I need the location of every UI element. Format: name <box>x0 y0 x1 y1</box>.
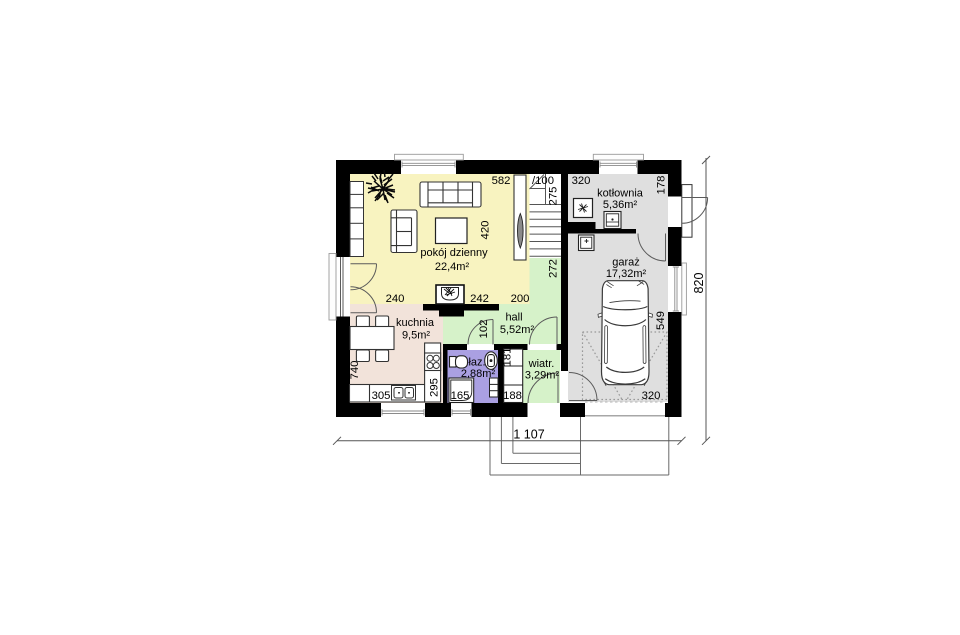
svg-text:1 107: 1 107 <box>513 428 544 442</box>
svg-text:wiatr.: wiatr. <box>528 358 555 370</box>
svg-text:22,4m²: 22,4m² <box>435 261 470 273</box>
svg-text:240: 240 <box>386 293 405 305</box>
svg-text:740: 740 <box>349 361 361 380</box>
svg-text:420: 420 <box>480 221 492 240</box>
svg-text:3,29m²: 3,29m² <box>525 370 560 382</box>
svg-text:188: 188 <box>503 390 522 402</box>
svg-text:820: 820 <box>692 273 706 294</box>
svg-text:275: 275 <box>548 187 560 206</box>
svg-text:kotłownia: kotłownia <box>597 188 644 200</box>
svg-text:178: 178 <box>656 176 668 195</box>
svg-text:17,32m²: 17,32m² <box>606 268 647 280</box>
svg-text:165: 165 <box>451 390 470 402</box>
svg-text:320: 320 <box>572 175 591 187</box>
svg-text:5,52m²: 5,52m² <box>500 324 535 336</box>
svg-text:272: 272 <box>548 259 560 278</box>
svg-text:5,36m²: 5,36m² <box>603 199 638 211</box>
svg-text:181: 181 <box>502 348 514 367</box>
svg-text:hall: hall <box>505 312 522 324</box>
svg-text:2,88m²: 2,88m² <box>461 368 496 380</box>
svg-text:295: 295 <box>429 378 441 397</box>
svg-text:102: 102 <box>478 320 490 339</box>
svg-text:305: 305 <box>372 390 391 402</box>
svg-text:/100: /100 <box>532 175 554 187</box>
svg-text:garaż: garaż <box>612 257 640 269</box>
svg-text:549: 549 <box>655 311 667 330</box>
svg-text:pokój dzienny: pokój dzienny <box>420 247 488 259</box>
svg-text:kuchnia: kuchnia <box>396 317 435 329</box>
svg-text:582: 582 <box>492 175 511 187</box>
svg-text:9,5m²: 9,5m² <box>402 330 430 342</box>
svg-text:200: 200 <box>511 293 530 305</box>
svg-text:320: 320 <box>642 390 661 402</box>
svg-text:łaz.: łaz. <box>468 357 485 369</box>
svg-text:242: 242 <box>470 293 489 305</box>
